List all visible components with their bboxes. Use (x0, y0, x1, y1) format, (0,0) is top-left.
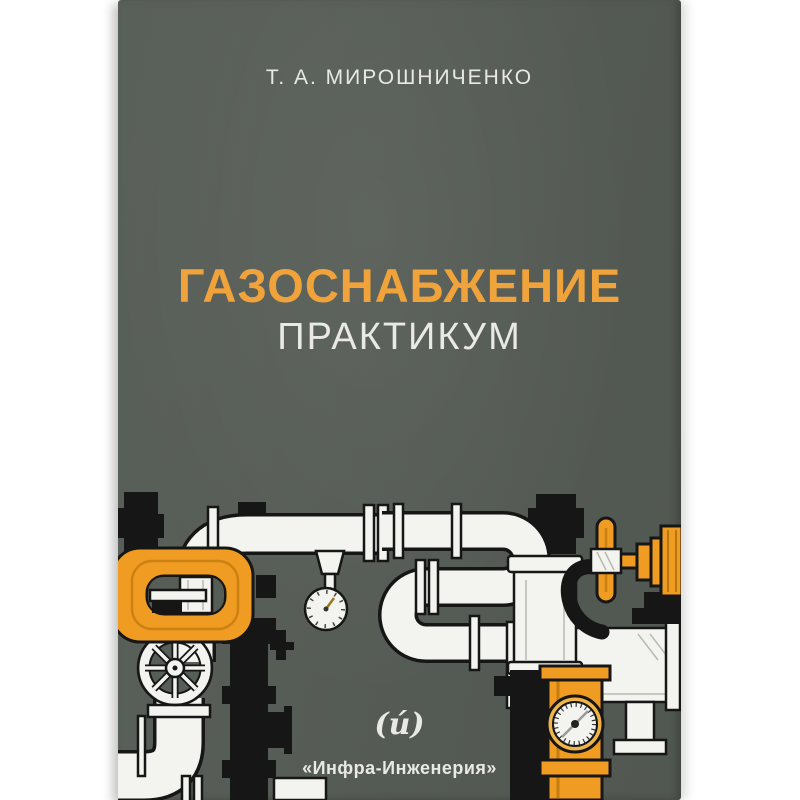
pressure-gauge-icon (305, 551, 347, 630)
expansion-loop (118, 548, 253, 642)
publisher-name: «Инфра-Инженерия» (118, 758, 681, 779)
book-subtitle: ПРАКТИКУМ (118, 318, 681, 356)
book-cover: Т. А. МИРОШНИЧЕНКО ГАЗОСНАБЖЕНИЕ ПРАКТИК… (118, 0, 681, 800)
orange-valve-icon (591, 518, 681, 602)
author-name: Т. А. МИРОШНИЧЕНКО (118, 66, 681, 90)
pipes-illustration (118, 480, 681, 800)
book-title: ГАЗОСНАБЖЕНИЕ (118, 262, 681, 309)
publisher-logo-icon: (и́) (118, 710, 681, 740)
